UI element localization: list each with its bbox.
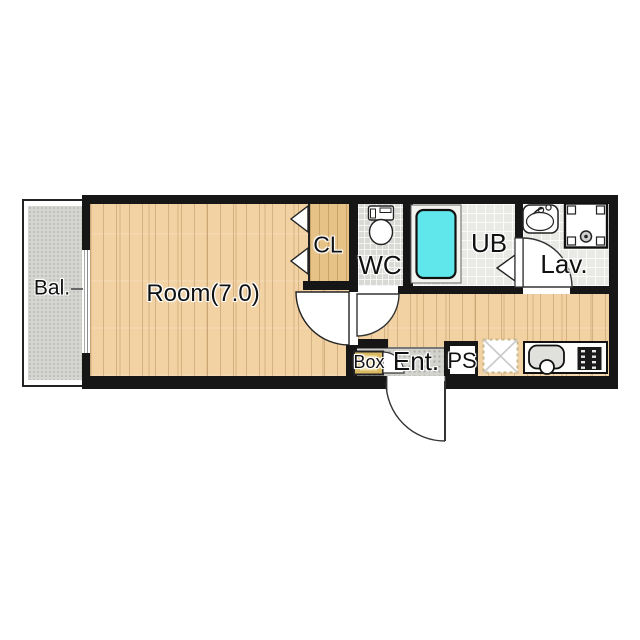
- bathtub-icon: [411, 205, 461, 283]
- entrance-door-icon: [386, 376, 446, 441]
- floor-plan-canvas: Bal. Room(7.0) CL WC UB Lav. Box Ent. PS: [0, 0, 640, 640]
- toilet-icon: [369, 206, 394, 245]
- pipe-space-label: PS: [447, 350, 476, 372]
- closet-bifold-door-icon: [291, 206, 308, 274]
- bath-label: UB: [471, 230, 507, 256]
- closet-label: CL: [313, 234, 342, 257]
- lavatory-label: Lav.: [540, 251, 587, 277]
- sliding-window-icon: [71, 250, 90, 353]
- room-door-icon: [296, 292, 349, 345]
- entrance-label: Ent.: [393, 348, 439, 374]
- washing-machine-space-icon: [565, 204, 607, 248]
- toilet-label: WC: [358, 252, 401, 278]
- stove-icon: [578, 347, 602, 370]
- bath-door-icon: [497, 255, 515, 281]
- fixtures-overlay: [0, 0, 640, 640]
- refrigerator-space-icon: [484, 340, 518, 373]
- room-label: Room(7.0): [146, 282, 259, 306]
- shoebox-label: Box: [353, 353, 384, 371]
- balcony-label: Bal.: [34, 278, 70, 299]
- toilet-door-icon: [357, 294, 399, 336]
- washbasin-icon: [523, 205, 558, 233]
